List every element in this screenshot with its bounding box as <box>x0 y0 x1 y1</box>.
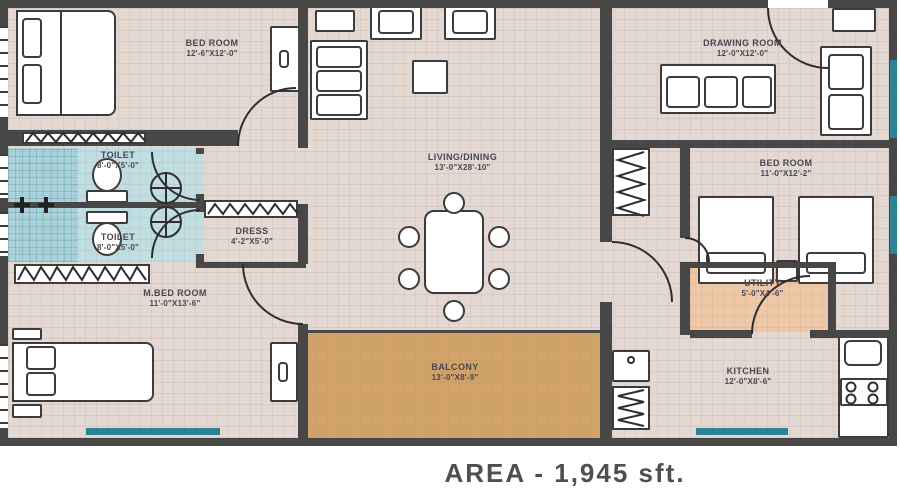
sofa-cushion <box>666 76 700 108</box>
room-label-toilet1: TOILET 8'-0"X5'-0" <box>78 150 158 170</box>
room-label-toilet2: TOILET 8'-0"X5'-0" <box>78 232 158 252</box>
sink-icon <box>844 340 882 366</box>
wall-toilet-right-b <box>196 194 204 212</box>
room-label-dress: DRESS 4'-2"X5'-0" <box>207 226 297 246</box>
side-table-icon <box>315 10 355 32</box>
wall-balcony-opening <box>308 330 600 333</box>
room-label-kitchen: KITCHEN 12'-0"X8'-6" <box>668 366 828 386</box>
floorplan: BED ROOM 12'-6"X12'-0" DRAWING ROOM 12'-… <box>0 0 897 446</box>
sink-icon <box>612 350 650 382</box>
wall-dress-right <box>298 204 308 264</box>
sofa-cushion <box>742 76 772 108</box>
window-icon <box>0 212 8 256</box>
room-dims: 8'-0"X5'-0" <box>78 243 158 253</box>
room-name: TOILET <box>78 232 158 243</box>
window-icon <box>890 196 897 254</box>
wall-bottom <box>0 438 897 446</box>
chair-icon <box>443 300 465 322</box>
room-label-bedroom2: BED ROOM 11'-0"X12'-2" <box>706 158 866 178</box>
wall-top-right <box>828 0 897 8</box>
wall-living-right-upper <box>600 8 612 242</box>
room-name: DRAWING ROOM <box>660 38 825 49</box>
room-dims: 4'-2"X5'-0" <box>207 237 297 247</box>
dining-table-icon <box>424 210 484 294</box>
sofa-cushion <box>378 10 414 34</box>
room-dims: 12'-0"X8'-6" <box>668 377 828 387</box>
room-dims: 11'-0"X13'-6" <box>95 299 255 309</box>
sofa-cushion <box>316 70 362 92</box>
chair-icon <box>398 268 420 290</box>
window-icon <box>0 154 8 198</box>
wardrobe-hatch-icon <box>612 148 650 216</box>
room-name: BED ROOM <box>132 38 292 49</box>
room-dims: 5'-0"X4'-6" <box>700 289 825 299</box>
room-name: BED ROOM <box>706 158 866 169</box>
room-name: LIVING/DINING <box>380 152 545 163</box>
room-label-balcony: BALCONY 13'-0"X8'-9" <box>375 362 535 382</box>
floorplan-image: BED ROOM 12'-6"X12'-0" DRAWING ROOM 12'-… <box>0 0 900 500</box>
room-label-bedroom1: BED ROOM 12'-6"X12'-0" <box>132 38 292 58</box>
wall-top-left <box>0 0 768 8</box>
room-name: UTILITY <box>700 278 825 289</box>
room-dims: 11'-0"X12'-2" <box>706 169 866 179</box>
sofa-cushion <box>316 94 362 116</box>
sofa-cushion <box>452 10 488 34</box>
wall-drawing-bottom <box>612 140 889 148</box>
room-dims: 12'-0"X12'-0" <box>660 49 825 59</box>
window-hatch-icon <box>14 264 150 284</box>
window-icon <box>890 60 897 138</box>
wall-utility-right <box>828 268 836 335</box>
chair-icon <box>488 226 510 248</box>
chair-icon <box>488 268 510 290</box>
room-dims: 12'-6"X12'-0" <box>132 49 292 59</box>
wall-toilet-divider <box>0 202 204 208</box>
room-label-mbedroom: M.BED ROOM 11'-0"X13'-6" <box>95 288 255 308</box>
wall-utility-top <box>690 262 836 268</box>
wall-utility-left <box>680 262 690 335</box>
window-icon <box>0 344 8 428</box>
room-label-living: LIVING/DINING 13'-0"X28'-10" <box>380 152 545 172</box>
wall-living-right-lower <box>600 302 612 438</box>
side-table-icon <box>12 328 42 340</box>
room-name: TOILET <box>78 150 158 161</box>
wall-toilet-right-c <box>196 254 204 262</box>
coffee-table-icon <box>412 60 448 94</box>
room-dims: 13'-0"X28'-10" <box>380 163 545 173</box>
wall-toilet-right-a <box>196 148 204 154</box>
wall-dress-bottom <box>196 262 306 268</box>
room-name: DRESS <box>207 226 297 237</box>
pillow-icon <box>22 18 42 58</box>
pillow-icon <box>26 346 56 370</box>
wall-kitchen-top-b <box>810 330 889 338</box>
room-label-utility: UTILITY 5'-0"X4'-6" <box>700 278 825 298</box>
chair-icon <box>398 226 420 248</box>
room-name: BALCONY <box>375 362 535 373</box>
room-label-drawing: DRAWING ROOM 12'-0"X12'-0" <box>660 38 825 58</box>
area-caption: AREA - 1,945 sft. <box>400 458 730 489</box>
window-icon <box>696 428 788 435</box>
balcony-floor <box>308 333 600 438</box>
wash-hatch-icon <box>612 386 650 430</box>
room-name: M.BED ROOM <box>95 288 255 299</box>
chair-icon <box>443 192 465 214</box>
sofa-cushion <box>316 46 362 68</box>
sofa-cushion <box>828 54 864 90</box>
room-dims: 13'-0"X8'-9" <box>375 373 535 383</box>
side-table-icon <box>12 404 42 418</box>
pillow-icon <box>26 372 56 396</box>
room-dims: 8'-0"X5'-0" <box>78 161 158 171</box>
bed-fold-line <box>60 12 62 114</box>
window-icon <box>86 428 220 435</box>
sofa-cushion <box>828 94 864 130</box>
room-name: KITCHEN <box>668 366 828 377</box>
wall-kitchen-top-a <box>690 330 752 338</box>
wall-mbed-right <box>298 330 308 446</box>
window-hatch-icon <box>22 132 146 144</box>
wall-bedroom1-right <box>298 8 308 148</box>
wall-bedroom2-left <box>680 148 690 238</box>
window-hatch-icon <box>204 200 298 218</box>
pillow-icon <box>22 64 42 104</box>
wardrobe-handle <box>278 362 288 382</box>
console-table-icon <box>832 8 876 32</box>
stove-icon <box>840 378 888 406</box>
sofa-cushion <box>704 76 738 108</box>
window-icon <box>0 26 8 118</box>
